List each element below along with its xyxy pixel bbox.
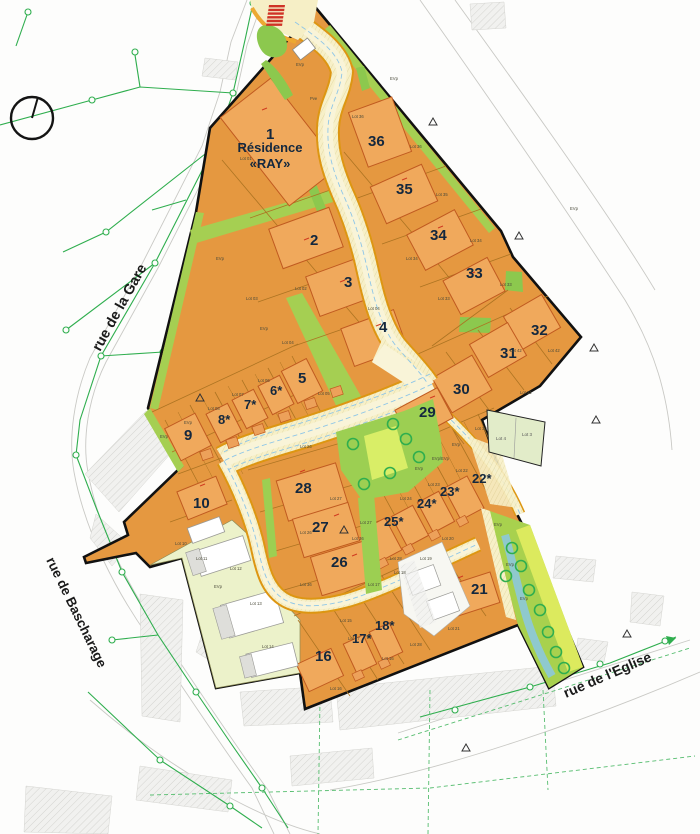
svg-text:Pve: Pve xyxy=(310,96,318,101)
svg-text:9: 9 xyxy=(184,427,192,444)
svg-text:EVp: EVp xyxy=(214,584,223,589)
svg-text:Lot 01: Lot 01 xyxy=(240,156,252,161)
svg-text:28: 28 xyxy=(295,480,312,497)
svg-text:Lot 26: Lot 26 xyxy=(300,530,312,535)
svg-text:Lot 07: Lot 07 xyxy=(232,392,244,397)
svg-text:36: 36 xyxy=(368,133,385,150)
svg-text:Lot 03: Lot 03 xyxy=(246,296,258,301)
svg-text:Lot 21: Lot 21 xyxy=(448,626,460,631)
svg-text:Lot 17: Lot 17 xyxy=(368,582,380,587)
svg-text:26: 26 xyxy=(331,554,348,571)
svg-text:24*: 24* xyxy=(417,496,437,511)
svg-text:Lot 20: Lot 20 xyxy=(442,536,454,541)
svg-text:23*: 23* xyxy=(440,484,460,499)
svg-text:34: 34 xyxy=(430,227,447,244)
svg-text:Lot 33: Lot 33 xyxy=(438,296,450,301)
svg-text:EVp: EVp xyxy=(216,256,225,261)
svg-text:Lot 11: Lot 11 xyxy=(196,556,208,561)
svg-text:EVp: EVp xyxy=(520,596,529,601)
svg-text:Lot 06: Lot 06 xyxy=(258,378,270,383)
svg-text:EVp/EVp: EVp/EVp xyxy=(432,456,450,461)
svg-text:Lot 16: Lot 16 xyxy=(330,686,342,691)
svg-text:EVp: EVp xyxy=(415,466,424,471)
svg-text:«RAY»: «RAY» xyxy=(250,156,291,171)
svg-text:Lot 30: Lot 30 xyxy=(475,426,487,431)
svg-text:EVp: EVp xyxy=(160,434,169,439)
svg-text:Lot 28: Lot 28 xyxy=(410,642,422,647)
svg-text:3: 3 xyxy=(344,274,352,291)
svg-text:Lot 22: Lot 22 xyxy=(456,468,468,473)
svg-text:Lot 18: Lot 18 xyxy=(394,570,406,575)
svg-text:Lot 4: Lot 4 xyxy=(496,436,507,441)
svg-text:33: 33 xyxy=(466,265,483,282)
svg-text:Lot 05: Lot 05 xyxy=(318,391,330,396)
svg-text:Lot 08: Lot 08 xyxy=(208,406,220,411)
svg-text:Lot 04: Lot 04 xyxy=(282,340,294,345)
svg-text:Lot 36: Lot 36 xyxy=(352,114,364,119)
svg-text:Lot 24: Lot 24 xyxy=(400,496,412,501)
svg-text:Lot 14: Lot 14 xyxy=(262,644,274,649)
svg-text:EVp: EVp xyxy=(296,62,305,67)
svg-text:Lot 34: Lot 34 xyxy=(470,238,482,243)
svg-text:Lot 26: Lot 26 xyxy=(300,444,312,449)
svg-text:Lot 36: Lot 36 xyxy=(410,144,422,149)
svg-text:Lot 35: Lot 35 xyxy=(436,192,448,197)
svg-text:EVp: EVp xyxy=(506,562,515,567)
svg-text:35: 35 xyxy=(396,181,413,198)
svg-text:Lot 36: Lot 36 xyxy=(352,536,364,541)
svg-text:10: 10 xyxy=(193,495,210,512)
svg-text:Lot 33: Lot 33 xyxy=(500,282,512,287)
svg-text:27: 27 xyxy=(312,519,329,536)
svg-text:25*: 25* xyxy=(384,514,404,529)
svg-text:18*: 18* xyxy=(375,618,395,633)
svg-text:6*: 6* xyxy=(270,383,283,398)
svg-text:Lot 10: Lot 10 xyxy=(175,541,187,546)
svg-text:Lot 12: Lot 12 xyxy=(230,566,242,571)
svg-text:4: 4 xyxy=(379,319,388,336)
svg-text:Lot 16: Lot 16 xyxy=(382,656,394,661)
svg-text:Lot 31: Lot 31 xyxy=(520,390,532,395)
svg-text:EVp: EVp xyxy=(452,442,461,447)
svg-text:Lot 27: Lot 27 xyxy=(360,520,372,525)
svg-text:EVp: EVp xyxy=(260,326,269,331)
svg-text:Lot 36: Lot 36 xyxy=(300,582,312,587)
svg-text:Lot 23: Lot 23 xyxy=(428,482,440,487)
svg-text:Lot 34: Lot 34 xyxy=(406,256,418,261)
svg-text:30: 30 xyxy=(453,381,470,398)
svg-text:8*: 8* xyxy=(218,412,231,427)
svg-text:21: 21 xyxy=(471,581,488,598)
svg-text:22*: 22* xyxy=(472,471,492,486)
svg-text:EVp: EVp xyxy=(570,206,579,211)
svg-text:29: 29 xyxy=(419,404,436,421)
svg-text:Lot 42: Lot 42 xyxy=(510,348,522,353)
svg-text:EVp: EVp xyxy=(184,420,193,425)
svg-text:EVp: EVp xyxy=(494,522,503,527)
svg-text:Lot 27: Lot 27 xyxy=(330,496,342,501)
svg-text:Lot 42: Lot 42 xyxy=(548,348,560,353)
svg-text:EVp: EVp xyxy=(390,76,399,81)
svg-text:Lot 15: Lot 15 xyxy=(340,618,352,623)
svg-text:Lot 17: Lot 17 xyxy=(348,636,360,641)
svg-text:Résidence: Résidence xyxy=(237,140,302,155)
svg-text:5: 5 xyxy=(298,370,306,387)
svg-text:7*: 7* xyxy=(244,397,257,412)
svg-text:2: 2 xyxy=(310,232,318,249)
svg-text:Lot 3: Lot 3 xyxy=(522,432,533,437)
svg-text:16: 16 xyxy=(315,648,332,665)
svg-text:Lot 02: Lot 02 xyxy=(295,286,307,291)
svg-text:Lot 28: Lot 28 xyxy=(390,556,402,561)
svg-text:Lot 04: Lot 04 xyxy=(368,306,380,311)
svg-text:Lot 13: Lot 13 xyxy=(250,601,262,606)
svg-text:Lot 19: Lot 19 xyxy=(420,556,432,561)
svg-text:32: 32 xyxy=(531,322,548,339)
